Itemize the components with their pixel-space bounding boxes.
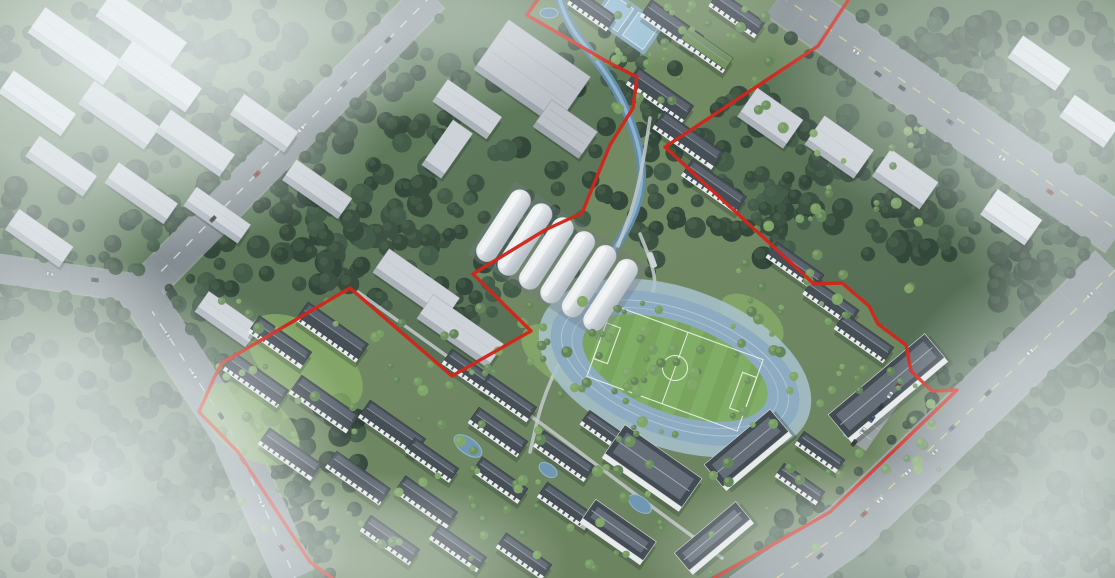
rendering-canvas	[0, 0, 1115, 578]
aerial-masterplan-rendering	[0, 0, 1115, 578]
